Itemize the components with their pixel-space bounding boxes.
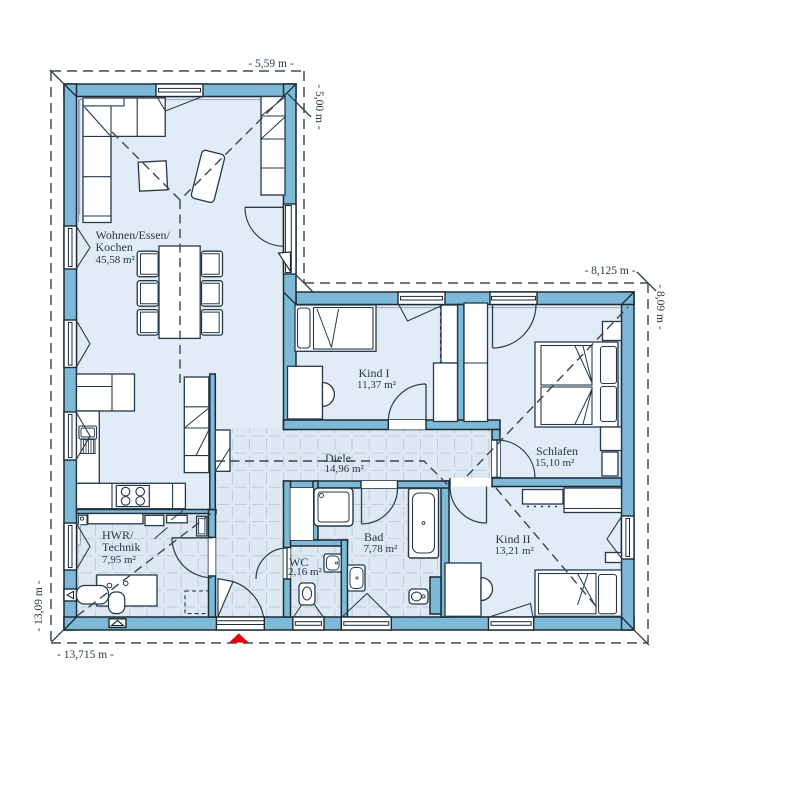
- svg-text:Kind I: Kind I: [359, 366, 390, 380]
- svg-text:2,16 m²: 2,16 m²: [288, 566, 323, 578]
- svg-text:- 5,59 m -: - 5,59 m -: [248, 58, 294, 70]
- svg-text:7,78 m²: 7,78 m²: [364, 543, 399, 555]
- svg-text:Technik: Technik: [102, 540, 140, 554]
- svg-text:Schlafen: Schlafen: [536, 444, 578, 458]
- svg-text:14,96 m²: 14,96 m²: [325, 463, 365, 475]
- svg-text:7,95 m²: 7,95 m²: [102, 554, 137, 566]
- svg-text:- 13,715 m -: - 13,715 m -: [57, 649, 114, 661]
- svg-text:13,21 m²: 13,21 m²: [495, 545, 535, 557]
- svg-text:Kochen: Kochen: [96, 240, 133, 254]
- svg-text:Bad: Bad: [364, 530, 383, 544]
- svg-text:Kind II: Kind II: [496, 532, 531, 546]
- svg-text:11,37 m²: 11,37 m²: [357, 379, 397, 391]
- svg-text:15,10 m²: 15,10 m²: [535, 457, 575, 469]
- svg-text:45,58 m²: 45,58 m²: [96, 254, 136, 266]
- svg-text:- 13,09 m -: - 13,09 m -: [33, 580, 45, 631]
- svg-text:- 5,00 m -: - 5,00 m -: [313, 84, 325, 130]
- svg-text:- 8,09 m -: - 8,09 m -: [654, 284, 666, 330]
- svg-text:- 8,125 m -: - 8,125 m -: [584, 265, 635, 277]
